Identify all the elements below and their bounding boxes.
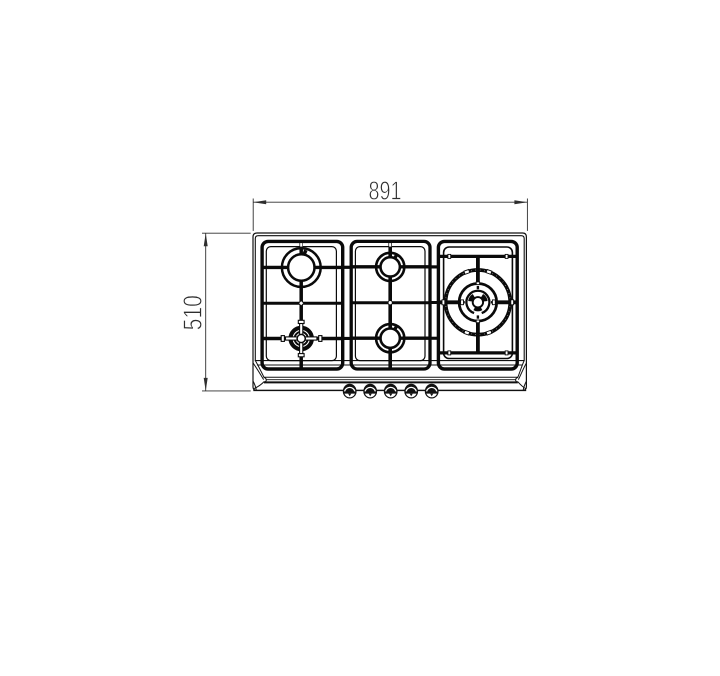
svg-text:510: 510: [177, 295, 207, 330]
svg-text:891: 891: [369, 176, 402, 206]
